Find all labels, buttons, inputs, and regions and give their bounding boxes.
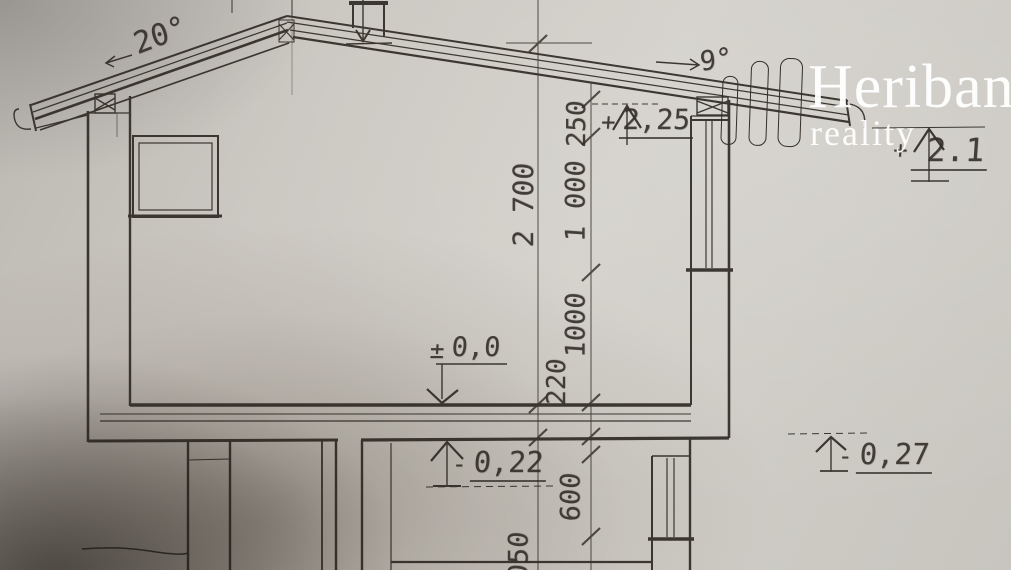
level-sign: -	[837, 440, 853, 468]
level-value: 0,27	[856, 440, 934, 474]
level-sign: +	[600, 106, 616, 134]
watermark-subtitle: reality	[810, 112, 916, 154]
left-wall	[88, 94, 130, 442]
watermark-logo: Heriban reality	[690, 40, 1011, 170]
basement-window-right	[648, 438, 694, 570]
gutter-left	[14, 109, 31, 129]
dim-roof-offset: 250	[564, 100, 590, 149]
dim-room-height: 2 700	[510, 162, 538, 248]
dim-basement-partial: 050	[506, 531, 533, 570]
floor-slab	[100, 405, 691, 421]
scanned-section-drawing: 20° 9° 2 700 250 1 000 1000 220 600 050 …	[0, 0, 1011, 570]
level-value: 0,0	[448, 334, 505, 364]
terrain-line	[82, 548, 188, 554]
level-basement-ceiling: - 0,22	[451, 448, 549, 482]
level-sign: -	[451, 448, 467, 476]
slope-arrow-left	[106, 55, 132, 67]
level-terrain: - 0,27	[837, 440, 935, 474]
dim-basement-window: 600	[558, 472, 585, 523]
level-value: 2,25	[619, 106, 695, 139]
level-sign: ±	[429, 334, 445, 362]
level-attic-ceiling: + 2,25	[600, 106, 695, 139]
dim-floor-slab: 220	[544, 358, 570, 407]
left-window	[128, 136, 222, 217]
dim-lower-wall: 1000	[563, 292, 590, 359]
dim-upper-wall: 1 000	[563, 159, 590, 242]
marker-ground-floor	[427, 364, 507, 403]
level-ground-floor: ± 0,0	[429, 334, 505, 364]
basement	[82, 438, 729, 570]
level-value: 0,22	[470, 448, 548, 482]
